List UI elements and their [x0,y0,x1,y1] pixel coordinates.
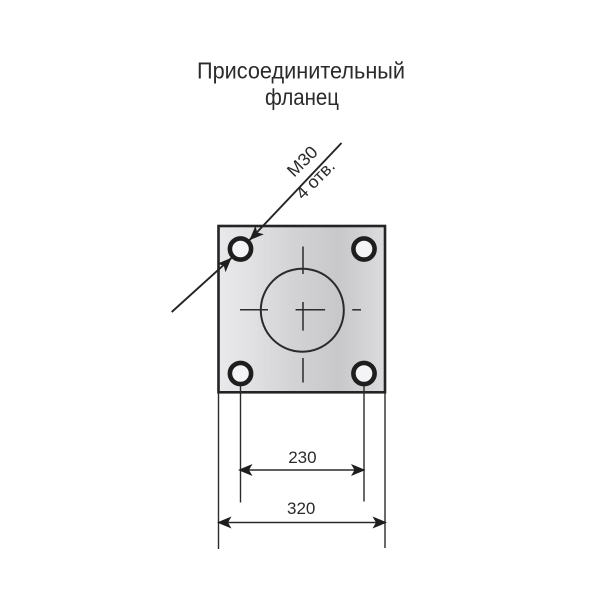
svg-text:Присоединительный: Присоединительный [197,58,405,84]
svg-text:230: 230 [288,448,316,467]
svg-text:фланец: фланец [265,84,339,110]
svg-text:320: 320 [287,499,315,518]
